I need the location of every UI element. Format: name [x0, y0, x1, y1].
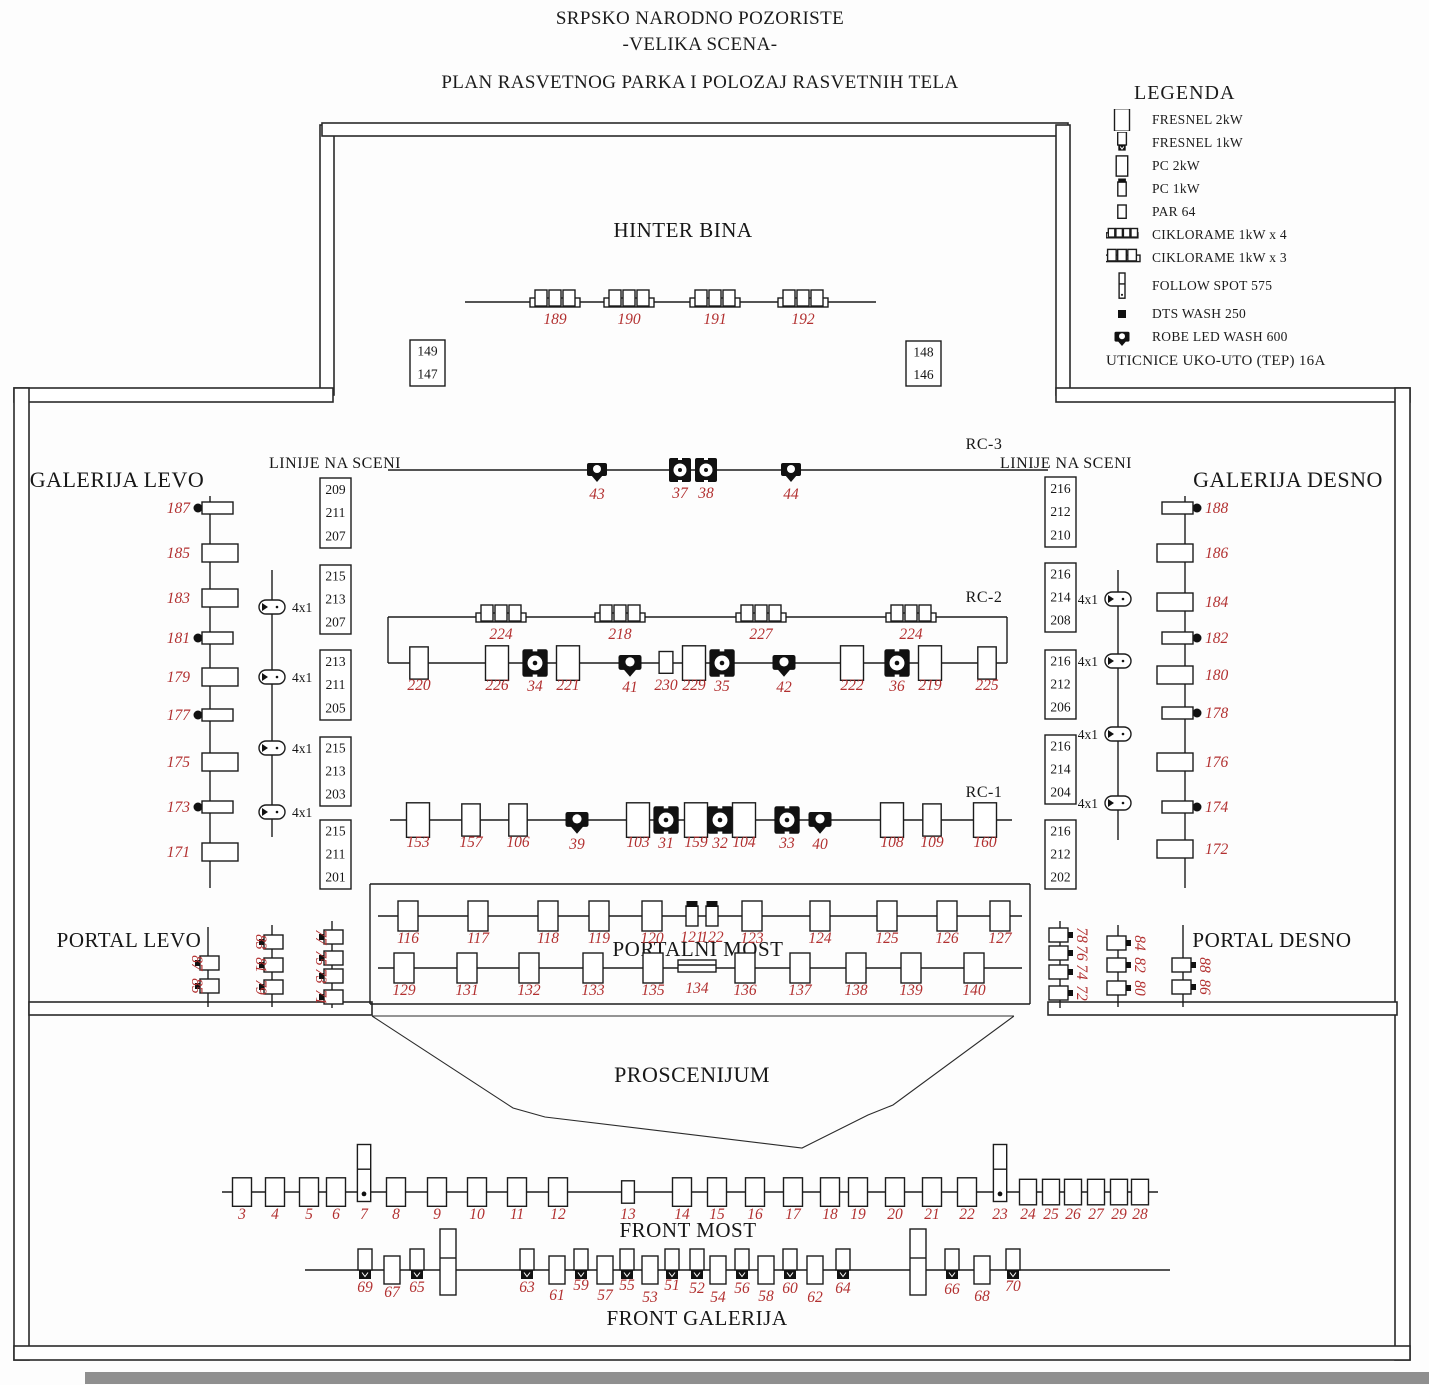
fixture-label: 28 — [1132, 1206, 1148, 1223]
follow-spot-icon-23: 23 — [992, 1145, 1008, 1224]
fixture-label: 58 — [758, 1288, 774, 1305]
gallery-fresnel-icon-171: 171 — [167, 843, 238, 861]
pc-2kw-icon — [1106, 155, 1150, 177]
fresnel-2kw-icon-4: 4 — [266, 1178, 285, 1223]
fixture-label: 52 — [689, 1280, 705, 1297]
gallery-pc1kw-icon-182: 182 — [1162, 630, 1229, 647]
follow-spot-icon — [910, 1229, 926, 1295]
fixture-label: 129 — [392, 982, 416, 999]
fixture-label: 5 — [305, 1206, 313, 1223]
fixture-label: 109 — [920, 834, 944, 851]
fixture-label: 131 — [455, 982, 478, 999]
fixture-label: 227 — [749, 626, 774, 643]
fixture-label: 108 — [880, 834, 904, 851]
circuit-number: 207 — [325, 615, 346, 630]
pc-2kw-icon-13: 13 — [620, 1181, 636, 1223]
circuit-number: 204 — [1050, 785, 1071, 800]
pc-2kw-icon-220: 220 — [407, 647, 431, 694]
section-title-linije-na-sceni-levo: LINIJE NA SCENI — [269, 455, 401, 472]
fixture-label: 13 — [620, 1206, 636, 1223]
circuit-number: 214 — [1050, 762, 1071, 777]
fixture-label: 68 — [974, 1288, 990, 1305]
portal-fixture-icon-80: 80 — [1107, 980, 1148, 996]
fixture-label: 122 — [700, 929, 724, 946]
fresnel-1kw-icon-59: 59 — [573, 1249, 589, 1294]
fixture-label: 41 — [622, 679, 638, 696]
fresnel-2kw-icon-26: 26 — [1065, 1179, 1082, 1223]
fresnel-2kw-icon-10: 10 — [468, 1178, 487, 1223]
circuit-box: 216212202 — [1045, 820, 1076, 889]
fixture-label: 8 — [392, 1206, 400, 1223]
circuit-number: 213 — [325, 654, 346, 669]
fixture-label: 25 — [1043, 1206, 1059, 1223]
fresnel-2kw-icon-125: 125 — [875, 901, 899, 947]
fixture-label: 160 — [973, 834, 997, 851]
fixture-label: 60 — [782, 1280, 798, 1297]
fixture-label: 76 — [1073, 945, 1090, 961]
fresnel-2kw-icon-3: 3 — [233, 1178, 252, 1223]
circuit-number: 202 — [1050, 870, 1070, 885]
circuit-number: 146 — [913, 367, 934, 382]
fresnel-2kw-icon-117: 117 — [467, 901, 490, 947]
bottom-strip — [85, 1372, 1429, 1384]
ciklorame-x3-icon-227: 227 — [736, 605, 786, 643]
circuit-box: 216214204 — [1045, 735, 1076, 804]
fixture-label: 103 — [626, 834, 650, 851]
pc-2kw-icon-68: 68 — [974, 1256, 990, 1305]
fixture-label: 57 — [597, 1287, 614, 1304]
fixture-label: 9 — [433, 1206, 441, 1223]
moving-head-wash-icon-34: 34 — [522, 648, 547, 695]
pc-2kw-icon-58: 58 — [758, 1256, 774, 1305]
band-right-4x1-line: 4x14x14x14x1 — [1078, 570, 1131, 840]
fresnel-2kw-icon-136: 136 — [733, 953, 757, 999]
fixture-label: 185 — [167, 545, 191, 562]
fixture-label: 77 — [312, 929, 329, 946]
band-portal-levo: PORTAL LEVO878583817977757371 — [57, 921, 343, 1008]
circuit-number: 214 — [1050, 590, 1071, 605]
legend-item: CIKLORAME 1kW x 3 — [1106, 247, 1424, 269]
fresnel-2kw-icon-104: 104 — [732, 803, 756, 851]
band-portal-desno: PORTAL DESNO787674728482808886 — [1049, 921, 1352, 1008]
pc-1kw-icon — [1106, 178, 1150, 200]
lighting-plan-page: HINTER BINA189190191192RC-343373844LINIJ… — [0, 0, 1429, 1385]
portal-fixture-icon-83: 83 — [252, 934, 283, 950]
fixture-label: 4x1 — [292, 600, 312, 615]
par64-icon — [1106, 201, 1150, 223]
fixture-label: 80 — [1131, 980, 1148, 996]
gallery-pc1kw-icon-178: 178 — [1162, 705, 1229, 722]
fixture-label: 55 — [619, 1277, 635, 1294]
circuit-box: 149147 — [410, 340, 445, 386]
portal-fixture-icon-73: 73 — [312, 968, 343, 984]
moving-head-wash-icon-32: 32 — [707, 805, 732, 852]
fixture-label: 19 — [850, 1206, 866, 1223]
fixture-label: 7 — [360, 1206, 369, 1223]
fixture-label: 54 — [710, 1289, 726, 1306]
section-title-galerija-desno: GALERIJA DESNO — [1193, 467, 1383, 492]
legend-item: PC 2kW — [1106, 155, 1424, 177]
fresnel-2kw-icon-116: 116 — [397, 901, 419, 947]
fresnel-2kw-icon-15: 15 — [708, 1178, 727, 1223]
fixture-label: 134 — [685, 980, 709, 997]
fixture-label: 17 — [785, 1206, 802, 1223]
circuit-number: 215 — [325, 569, 346, 584]
fixture-label: 159 — [684, 834, 708, 851]
fixture-label: 137 — [788, 982, 813, 999]
circuit-number: 212 — [1050, 677, 1070, 692]
band-hinter-bina: HINTER BINA189190191192 — [465, 218, 876, 328]
circuit-number: 211 — [326, 505, 346, 520]
fixture-label: 171 — [167, 844, 190, 861]
band-galerija-levo: GALERIJA LEVO187185183181179177175173171 — [30, 467, 238, 888]
fixture-label: 136 — [733, 982, 757, 999]
fixture-label: 190 — [617, 311, 641, 328]
fresnel-1kw-icon-52: 52 — [689, 1249, 705, 1297]
fixture-label: 104 — [732, 834, 756, 851]
fresnel-2kw-icon-5: 5 — [300, 1178, 319, 1223]
fixture-label: 88 — [1196, 957, 1213, 973]
fresnel-1kw-icon-56: 56 — [734, 1249, 750, 1297]
fixture-label: 173 — [167, 799, 191, 816]
fresnel-2kw-icon-24: 24 — [1020, 1179, 1037, 1223]
legend-item-label: PC 1kW — [1152, 181, 1200, 197]
fixture-label: 35 — [713, 678, 730, 695]
follow-spot-icon-7: 7 — [357, 1145, 370, 1224]
fixture-label: 72 — [1073, 985, 1090, 1001]
pc-2kw-icon-106: 106 — [506, 804, 530, 851]
fresnel-2kw-icon-133: 133 — [581, 953, 605, 999]
gallery-fresnel-icon-183: 183 — [167, 589, 238, 607]
portal-fixture-icon-75: 75 — [312, 950, 343, 966]
fresnel-2kw-icon-21: 21 — [923, 1178, 942, 1223]
pc-2kw-icon-67: 67 — [384, 1256, 401, 1301]
circuit-number: 212 — [1050, 504, 1070, 519]
fixture-label: 106 — [506, 834, 530, 851]
fresnel-2kw-icon-123: 123 — [740, 901, 764, 947]
section-title-rc-1: RC-1 — [966, 784, 1003, 801]
circuit-number: 216 — [1050, 824, 1071, 839]
pc-2kw-icon-225: 225 — [975, 647, 999, 694]
fixture-label: 187 — [167, 500, 192, 517]
fixture-label: 4x1 — [292, 741, 312, 756]
legend-item: FOLLOW SPOT 575 — [1106, 270, 1424, 302]
circuit-number: 211 — [326, 847, 346, 862]
ciklorame-x3-icon-224: 224 — [476, 605, 526, 643]
fixture-label: 38 — [697, 485, 714, 502]
section-title-front-galerija: FRONT GALERIJA — [606, 1306, 787, 1330]
ciklorame-x3-icon — [1106, 247, 1150, 269]
fixture-label: 174 — [1205, 799, 1229, 816]
fresnel-1kw-icon — [1106, 132, 1150, 154]
fixture-label: 172 — [1205, 841, 1229, 858]
fixture-label: 226 — [485, 677, 509, 694]
fixture-label: 127 — [988, 930, 1013, 947]
fixture-label: 6 — [332, 1206, 340, 1223]
fixture-label: 81 — [252, 957, 269, 973]
moving-head-wash-icon-35: 35 — [709, 648, 734, 695]
section-title-rc-3: RC-3 — [966, 436, 1003, 453]
legend-item: PC 1kW — [1106, 178, 1424, 200]
fixture-label: 132 — [517, 982, 541, 999]
robe-led-wash-icon-39: 39 — [566, 812, 589, 853]
band-rc-2: RC-2224218227224220226342214123022935422… — [388, 589, 1007, 696]
fresnel-2kw-icon-226: 226 — [485, 646, 509, 694]
band-linije-na-sceni-levo: LINIJE NA SCENI — [269, 455, 401, 472]
fixture-label: 139 — [899, 982, 923, 999]
fixture-label: 138 — [844, 982, 868, 999]
fixture-label: 67 — [384, 1284, 401, 1301]
band-proscenijum: PROSCENIJUM — [614, 1062, 770, 1087]
section-title-galerija-levo: GALERIJA LEVO — [30, 467, 205, 492]
fixture-label: 118 — [537, 930, 559, 947]
legend-item-label: FRESNEL 1kW — [1152, 135, 1243, 151]
fixture-label: 157 — [459, 834, 484, 851]
fixture-label: 32 — [711, 835, 728, 852]
fresnel-2kw-icon-12: 12 — [549, 1178, 568, 1223]
pc-2kw-icon-61: 61 — [549, 1256, 565, 1304]
gallery-pc1kw-icon-187: 187 — [167, 500, 233, 517]
fixture-label: 184 — [1205, 594, 1229, 611]
fresnel-2kw-icon-17: 17 — [784, 1178, 803, 1223]
fixture-label: 133 — [581, 982, 605, 999]
portal-fixture-icon-76: 76 — [1049, 945, 1090, 961]
page-title: SRPSKO NARODNO POZORISTE -VELIKA SCENA- … — [355, 8, 1045, 94]
gallery-fresnel-icon-180: 180 — [1157, 666, 1229, 684]
portal-fixture-icon-74: 74 — [1049, 964, 1090, 980]
fixture-label: 21 — [924, 1206, 940, 1223]
pc-2kw-icon-62: 62 — [807, 1256, 823, 1306]
fixture-label: 188 — [1205, 500, 1229, 517]
fresnel-2kw-icon-160: 160 — [973, 803, 997, 851]
ciklorame-strip-icon-134: 134 — [678, 960, 716, 997]
band-portalni-most: PORTALNI MOST116117118119120121122123124… — [370, 884, 1030, 1004]
fixture-label: 12 — [550, 1206, 566, 1223]
fixture-label: 64 — [835, 1280, 851, 1297]
pc-2kw-icon-109: 109 — [920, 804, 944, 851]
follow-spot-icon — [1106, 270, 1150, 302]
ciklorame-x3-icon-189: 189 — [530, 290, 580, 328]
portal-fixture-icon-88: 88 — [1172, 957, 1213, 973]
circuit-number: 148 — [913, 344, 934, 359]
par64-icon-230: 230 — [654, 652, 678, 695]
fixture-label: 140 — [962, 982, 986, 999]
gallery-fresnel-icon-176: 176 — [1157, 753, 1229, 771]
legend-footer: UTICNICE UKO-UTO (TEP) 16A — [1106, 353, 1424, 370]
fresnel-2kw-icon-27: 27 — [1088, 1179, 1106, 1223]
circuit-number: 206 — [1050, 700, 1071, 715]
section-title-hinter-bina: HINTER BINA — [613, 218, 752, 242]
fixture-label: 180 — [1205, 667, 1229, 684]
circuit-number: 205 — [325, 701, 346, 716]
moving-head-wash-icon-31: 31 — [653, 805, 678, 852]
circuit-number: 216 — [1050, 654, 1071, 669]
title-line-1: SRPSKO NARODNO POZORISTE — [355, 8, 1045, 30]
fresnel-2kw-icon-8: 8 — [387, 1178, 406, 1223]
fixture-label: 16 — [747, 1206, 763, 1223]
fresnel-1kw-icon-70: 70 — [1005, 1249, 1021, 1295]
gallery-fresnel-icon-179: 179 — [167, 668, 238, 686]
fixture-label: 53 — [642, 1289, 658, 1306]
fixture-label: 125 — [875, 930, 899, 947]
gallery-pc1kw-icon-173: 173 — [167, 799, 233, 816]
band-left-4x1-line: 4x14x14x14x1 — [259, 570, 312, 837]
4x1-bar-icon-4x1: 4x1 — [259, 600, 312, 615]
title-line-3: PLAN RASVETNOG PARKA I POLOZAJ RASVETNIH… — [355, 72, 1045, 94]
robe-led-wash-icon-41: 41 — [619, 655, 642, 696]
circuit-number: 208 — [1050, 613, 1071, 628]
fixture-label: 36 — [888, 678, 905, 695]
legend-item-label: PAR 64 — [1152, 204, 1196, 220]
circuit-number: 209 — [325, 482, 346, 497]
fixture-label: 71 — [312, 989, 329, 1005]
legend-title: LEGENDA — [1134, 82, 1424, 105]
fixture-label: 18 — [822, 1206, 838, 1223]
gallery-pc1kw-icon-188: 188 — [1162, 500, 1229, 517]
4x1-bar-icon-4x1: 4x1 — [259, 805, 312, 820]
legend-item: FRESNEL 1kW — [1106, 132, 1424, 154]
fresnel-2kw-icon-138: 138 — [844, 953, 868, 999]
legend-item-label: FOLLOW SPOT 575 — [1152, 278, 1272, 294]
circuit-number: 212 — [1050, 847, 1070, 862]
fixture-label: 78 — [1073, 927, 1090, 943]
circuit-number: 201 — [325, 870, 345, 885]
4x1-bar-icon-4x1: 4x1 — [1078, 592, 1131, 607]
ciklorame-x3-icon-224: 224 — [886, 605, 936, 643]
circuit-box: 215213207 — [320, 565, 351, 634]
dts-wash-icon — [1106, 303, 1150, 325]
fresnel-2kw-icon-137: 137 — [788, 953, 813, 999]
fixture-label: 186 — [1205, 545, 1229, 562]
fresnel-2kw-icon-222: 222 — [840, 646, 864, 694]
fixture-label: 177 — [167, 707, 192, 724]
circuit-number: 147 — [417, 367, 438, 382]
robe-led-wash-icon-40: 40 — [809, 812, 832, 853]
gallery-fresnel-icon-175: 175 — [167, 753, 238, 771]
circuit-number: 207 — [325, 529, 346, 544]
band-linije-na-sceni-desno: LINIJE NA SCENI — [1000, 455, 1132, 472]
fixture-label: 75 — [312, 950, 329, 966]
robe-led-wash-icon-43: 43 — [587, 463, 607, 503]
band-rc-3: RC-343373844 — [388, 436, 1048, 503]
fixture-label: 87 — [188, 955, 205, 972]
fresnel-2kw-icon-140: 140 — [962, 953, 986, 999]
fixture-label: 3 — [237, 1206, 246, 1223]
fresnel-1kw-icon-64: 64 — [835, 1249, 851, 1297]
legend-items: FRESNEL 2kWFRESNEL 1kWPC 2kWPC 1kWPAR 64… — [1106, 109, 1424, 348]
legend-item: PAR 64 — [1106, 201, 1424, 223]
fresnel-2kw-icon-9: 9 — [428, 1178, 447, 1223]
fixture-label: 178 — [1205, 705, 1229, 722]
section-title-rc-2: RC-2 — [966, 589, 1003, 606]
fixture-label: 51 — [664, 1277, 680, 1294]
fixture-label: 11 — [510, 1206, 524, 1223]
fixture-label: 220 — [407, 677, 431, 694]
gallery-fresnel-icon-172: 172 — [1157, 840, 1229, 858]
fresnel-2kw-icon-119: 119 — [588, 901, 610, 947]
fresnel-1kw-icon-63: 63 — [519, 1249, 535, 1296]
fresnel-1kw-icon-55: 55 — [619, 1249, 635, 1294]
fixture-label: 4x1 — [1078, 654, 1098, 669]
fresnel-2kw-icon-139: 139 — [899, 953, 923, 999]
portal-fixture-icon-85: 85 — [188, 978, 219, 994]
robe-led-wash-icon-42: 42 — [773, 655, 796, 696]
4x1-bar-icon-4x1: 4x1 — [1078, 796, 1131, 811]
bands-layer: HINTER BINA189190191192RC-343373844LINIJ… — [30, 218, 1383, 1330]
portal-fixture-icon-84: 84 — [1107, 935, 1148, 951]
portal-fixture-icon-77: 77 — [312, 929, 343, 946]
fresnel-2kw-icon-120: 120 — [640, 901, 664, 947]
fresnel-2kw-icon-25: 25 — [1043, 1179, 1060, 1223]
portal-fixture-icon-81: 81 — [252, 957, 283, 973]
fixture-label: 4x1 — [1078, 592, 1098, 607]
legend-item: DTS WASH 250 — [1106, 303, 1424, 325]
fresnel-2kw-icon-219: 219 — [918, 646, 942, 694]
circuit-box: 148146 — [906, 341, 941, 386]
fixture-label: 10 — [469, 1206, 485, 1223]
fixture-label: 230 — [654, 677, 678, 694]
fixture-label: 24 — [1020, 1206, 1036, 1223]
legend-item: ROBE LED WASH 600 — [1106, 326, 1424, 348]
fixture-label: 183 — [167, 590, 191, 607]
fixture-label: 4x1 — [1078, 796, 1098, 811]
fresnel-2kw-icon-103: 103 — [626, 803, 650, 851]
fresnel-2kw-icon-127: 127 — [988, 901, 1013, 947]
4x1-bar-icon-4x1: 4x1 — [259, 670, 312, 685]
ciklorame-x3-icon-192: 192 — [778, 290, 828, 328]
circuit-box: 215213203 — [320, 737, 351, 806]
circuit-number: 213 — [325, 592, 346, 607]
fixture-label: 15 — [709, 1206, 725, 1223]
section-title-proscenijum: PROSCENIJUM — [614, 1062, 770, 1087]
circuit-number: 216 — [1050, 739, 1071, 754]
follow-spot-icon — [440, 1229, 456, 1295]
circuit-number: 215 — [325, 824, 346, 839]
fixture-label: 179 — [167, 669, 191, 686]
fixture-label: 126 — [935, 930, 959, 947]
portal-fixture-icon-86: 86 — [1172, 979, 1213, 995]
fresnel-2kw-icon-28: 28 — [1132, 1179, 1149, 1223]
fixture-label: 65 — [409, 1279, 425, 1296]
legend-item: CIKLORAME 1kW x 4 — [1106, 224, 1424, 246]
fixture-label: 182 — [1205, 630, 1229, 647]
fixture-label: 39 — [568, 836, 585, 853]
fixture-label: 59 — [573, 1277, 589, 1294]
fresnel-2kw-icon-132: 132 — [517, 953, 541, 999]
ciklorame-x3-icon-218: 218 — [595, 605, 645, 643]
fixture-label: 124 — [808, 930, 832, 947]
fixture-label: 29 — [1111, 1206, 1127, 1223]
legend-item-label: ROBE LED WASH 600 — [1152, 329, 1288, 345]
gallery-pc1kw-icon-177: 177 — [167, 707, 233, 724]
gallery-fresnel-icon-186: 186 — [1157, 544, 1229, 562]
fixture-label: 23 — [992, 1206, 1008, 1223]
fixture-label: 74 — [1073, 964, 1090, 980]
fresnel-2kw-icon-135: 135 — [641, 953, 665, 999]
band-front-most: FRONT MOST345678910111213141516171819202… — [222, 1145, 1158, 1243]
fixture-label: 153 — [406, 834, 430, 851]
circuit-number: 215 — [325, 741, 346, 756]
fixture-label: 4x1 — [292, 805, 312, 820]
fixture-label: 219 — [918, 677, 942, 694]
band-rc-1: RC-1153157106391033115932104334010810916… — [390, 784, 1012, 853]
fresnel-2kw-icon-131: 131 — [455, 953, 478, 999]
ciklorame-x3-icon-191: 191 — [690, 290, 740, 328]
fixture-label: 176 — [1205, 754, 1229, 771]
moving-head-wash-icon-37: 37 — [669, 457, 691, 502]
moving-head-wash-icon-33: 33 — [774, 805, 799, 852]
fresnel-2kw-icon-124: 124 — [808, 901, 832, 947]
